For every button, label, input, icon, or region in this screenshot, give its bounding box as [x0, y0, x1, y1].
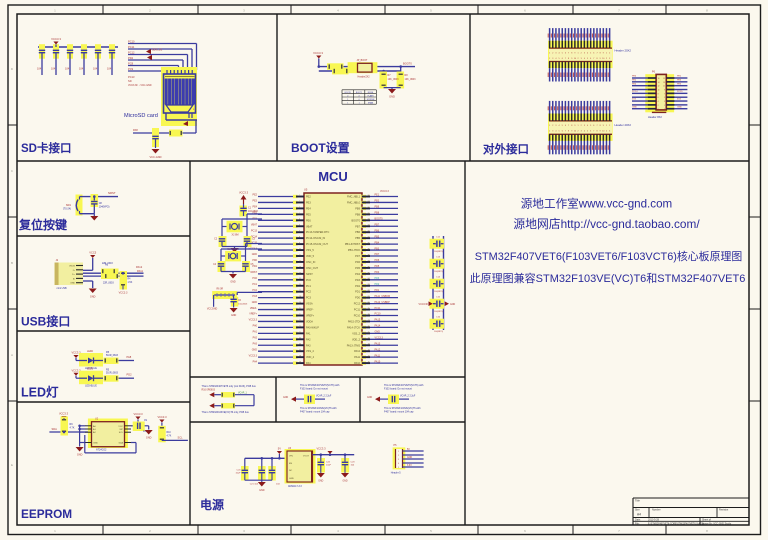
svg-text:PC2: PC2	[306, 291, 311, 294]
svg-text:AMS1117-3.3: AMS1117-3.3	[288, 485, 302, 488]
svg-text:Size: Size	[635, 509, 640, 512]
svg-text:EN: EN	[289, 463, 292, 465]
svg-text:25: 25	[299, 338, 301, 340]
svg-text:PC11: PC11	[375, 307, 381, 310]
svg-text:4: 4	[398, 463, 399, 465]
svg-text:F407 board: mount 104 cap: F407 board: mount 104 cap	[384, 411, 414, 414]
svg-text:VCC3.3F: VCC3.3F	[419, 304, 429, 306]
svg-text:Header 5: Header 5	[391, 472, 402, 475]
svg-text:VCAP_2 2.2uF: VCAP_2 2.2uF	[316, 395, 332, 398]
svg-text:10K_0603: 10K_0603	[388, 78, 400, 81]
svg-text:71: 71	[368, 356, 370, 358]
svg-text:PA12: PA12	[136, 265, 143, 269]
svg-text:1: 1	[549, 52, 550, 54]
svg-text:1: 1	[549, 125, 550, 127]
svg-text:10uF: 10uF	[236, 473, 242, 475]
svg-text:VCC: VCC	[118, 426, 123, 428]
svg-text:PB6: PB6	[355, 231, 360, 234]
svg-text:P6: P6	[652, 70, 656, 74]
svg-text:72: 72	[368, 350, 370, 352]
svg-text:GND: GND	[450, 304, 455, 306]
svg-text:7: 7	[593, 131, 594, 133]
svg-text:PE1: PE1	[375, 194, 380, 197]
svg-text:BOOT0: BOOT0	[352, 219, 361, 222]
svg-text:1: 1	[299, 195, 300, 197]
svg-text:PB6: PB6	[375, 229, 380, 232]
svg-text:对外接口: 对外接口	[483, 142, 529, 156]
svg-text:BOOT0: BOOT0	[403, 62, 412, 66]
svg-text:27: 27	[299, 350, 301, 352]
svg-text:2: 2	[578, 131, 579, 133]
svg-text:95: 95	[368, 213, 370, 215]
svg-text:B: B	[11, 261, 13, 265]
svg-text:PA14-JTCK: PA14-JTCK	[347, 326, 360, 329]
svg-text:88: 88	[368, 254, 370, 256]
svg-text:7: 7	[596, 52, 597, 54]
svg-text:PC12: PC12	[128, 51, 135, 55]
svg-text:73: 73	[368, 344, 370, 346]
svg-text:PD2: PD2	[127, 373, 133, 377]
svg-text:PA1: PA1	[306, 332, 311, 335]
svg-text:VCC3.3: VCC3.3	[51, 37, 61, 41]
svg-text:97: 97	[368, 201, 370, 203]
svg-text:SD: SD	[128, 79, 132, 83]
svg-text:F103 board: Do not mount: F103 board: Do not mount	[300, 388, 328, 391]
svg-text:8: 8	[600, 52, 601, 54]
svg-text:PD0: PD0	[252, 259, 257, 262]
svg-text:3: 3	[552, 58, 553, 60]
svg-text:29: 29	[299, 362, 301, 364]
svg-text:File:: File:	[635, 522, 640, 525]
svg-text:SDA: SDA	[119, 442, 124, 445]
svg-text:BOOT设置: BOOT设置	[291, 140, 350, 155]
svg-text:104: 104	[51, 68, 56, 71]
svg-text:STM32F407VET6(F103VET6/F103VCT: STM32F407VET6(F103VET6/F103VCT6)核心板原理图	[475, 249, 743, 263]
svg-text:10: 10	[658, 90, 660, 92]
svg-text:PA11: PA11	[354, 356, 360, 359]
svg-text:1: 1	[664, 105, 665, 107]
svg-text:VCC3.3: VCC3.3	[375, 337, 384, 340]
svg-text:MODE: MODE	[368, 92, 374, 94]
svg-text:PA13: PA13	[375, 342, 381, 345]
svg-text:-1: -1	[663, 109, 665, 111]
svg-text:104: 104	[107, 68, 112, 71]
svg-text:VSSA: VSSA	[306, 303, 313, 306]
svg-text:GND: GND	[677, 106, 682, 108]
svg-text:PB7: PB7	[355, 225, 360, 228]
svg-text:93: 93	[368, 225, 370, 227]
svg-text:5: 5	[590, 125, 591, 127]
svg-text:PC15-OSC32_OUT: PC15-OSC32_OUT	[306, 243, 328, 246]
svg-text:GND: GND	[342, 481, 347, 483]
svg-text:104(NPO): 104(NPO)	[99, 206, 110, 209]
svg-text:9: 9	[600, 131, 601, 133]
svg-text:7: 7	[565, 58, 566, 60]
svg-text:NRST: NRST	[250, 271, 257, 274]
svg-text:2: 2	[658, 105, 659, 107]
svg-text:PE3: PE3	[306, 201, 311, 204]
svg-text:GND: GND	[252, 301, 258, 304]
svg-text:2: 2	[398, 455, 399, 457]
svg-text:PE4: PE4	[252, 206, 257, 209]
svg-text:Title: Title	[635, 499, 640, 503]
svg-text:PA2: PA2	[253, 337, 258, 340]
svg-text:3: 3	[552, 131, 553, 133]
svg-text:12: 12	[658, 86, 660, 88]
svg-text:VCAP_2 2.2uF: VCAP_2 2.2uF	[400, 395, 416, 398]
svg-text:4: 4	[584, 131, 585, 133]
svg-text:SD卡接口: SD卡接口	[21, 141, 71, 155]
svg-text:4: 4	[555, 131, 556, 133]
svg-text:5: 5	[559, 131, 560, 133]
svg-text:PE2: PE2	[306, 196, 311, 199]
svg-text:R16 0R0603: R16 0R0603	[202, 389, 216, 392]
svg-text:6: 6	[593, 52, 594, 54]
svg-text:7: 7	[299, 231, 300, 233]
svg-text:GND: GND	[77, 454, 83, 457]
svg-text:3: 3	[609, 58, 610, 60]
svg-text:Sheet of: Sheet of	[702, 519, 711, 522]
svg-text:7: 7	[568, 125, 569, 127]
svg-text:EEPROM: EEPROM	[21, 507, 72, 521]
svg-text:GND: GND	[367, 397, 372, 399]
svg-text:This is STM32F103VE(VC)T6 only: This is STM32F103VE(VC)T6 only, PCB bus	[202, 411, 250, 414]
svg-text:LED0: LED0	[87, 350, 94, 353]
svg-text:PD2: PD2	[128, 56, 134, 60]
svg-text:PA13-JTMS: PA13-JTMS	[347, 344, 361, 347]
svg-text:PC1: PC1	[252, 283, 257, 286]
svg-text:(TS-24): (TS-24)	[63, 208, 71, 211]
svg-text:9: 9	[603, 52, 604, 54]
svg-text:91: 91	[368, 237, 370, 239]
svg-text:OSC_IN: OSC_IN	[306, 261, 316, 264]
svg-text:PA12: PA12	[354, 350, 361, 353]
svg-text:7: 7	[568, 52, 569, 54]
svg-text:PB5: PB5	[355, 237, 360, 240]
svg-text:PC9: PC9	[128, 67, 134, 71]
svg-text:9: 9	[603, 125, 604, 127]
svg-text:4: 4	[299, 213, 300, 215]
svg-text:PB4: PB4	[375, 241, 380, 244]
svg-text:6: 6	[590, 58, 591, 60]
svg-text:GND: GND	[632, 106, 637, 108]
svg-text:9: 9	[600, 58, 601, 60]
svg-text:10: 10	[574, 58, 576, 60]
svg-text:PD4: PD4	[355, 273, 360, 276]
svg-text:3: 3	[584, 125, 585, 127]
svg-text:PB3-JTDO: PB3-JTDO	[348, 249, 360, 252]
svg-text:510R_0603: 510R_0603	[106, 373, 119, 375]
svg-text:3: 3	[555, 125, 556, 127]
svg-text:Header 20X2: Header 20X2	[615, 49, 632, 53]
svg-text:5: 5	[398, 467, 399, 469]
svg-text:13: 13	[663, 82, 665, 84]
svg-text:3: 3	[398, 459, 399, 461]
svg-text:PD6: PD6	[355, 261, 360, 264]
svg-text:1.5K: 1.5K	[128, 282, 133, 284]
svg-text:VREF+: VREF+	[306, 315, 315, 318]
svg-text:81: 81	[368, 296, 370, 298]
svg-text:1: 1	[398, 451, 399, 453]
svg-text:4.7K: 4.7K	[70, 427, 75, 430]
svg-text:21: 21	[299, 314, 301, 316]
svg-text:VCC3.3: VCC3.3	[313, 51, 323, 55]
svg-text:复位按键: 复位按键	[18, 217, 67, 232]
svg-text:源地工作室www.vcc-gnd.com: 源地工作室www.vcc-gnd.com	[521, 197, 672, 211]
svg-text:86: 86	[368, 266, 370, 268]
svg-text:4: 4	[584, 58, 585, 60]
svg-text:F407 board: mount 104 cap: F407 board: mount 104 cap	[300, 411, 330, 414]
svg-text:VCC3.3: VCC3.3	[134, 412, 144, 416]
svg-text:SRAM: SRAM	[368, 102, 374, 105]
svg-text:5V: 5V	[407, 449, 410, 451]
svg-text:VCC3.3: VCC3.3	[249, 354, 258, 357]
svg-text:VSS_5: VSS_5	[306, 249, 314, 252]
svg-text:PD5: PD5	[375, 265, 380, 268]
svg-text:9: 9	[299, 243, 300, 245]
svg-text:5: 5	[587, 58, 588, 60]
svg-text:15: 15	[299, 278, 301, 280]
svg-text:A: A	[11, 353, 13, 357]
svg-text:3: 3	[581, 58, 582, 60]
svg-text:6: 6	[658, 97, 659, 99]
svg-text:2: 2	[549, 131, 550, 133]
svg-text:22: 22	[299, 320, 301, 322]
svg-text:9: 9	[571, 131, 572, 133]
svg-text:83: 83	[368, 284, 370, 286]
svg-text:R6 0R: R6 0R	[217, 289, 224, 291]
svg-text:5: 5	[562, 52, 563, 54]
svg-text:22R_0603: 22R_0603	[102, 263, 113, 265]
svg-text:GND: GND	[283, 397, 288, 399]
svg-text:84: 84	[368, 278, 370, 280]
svg-text:PE0: PE0	[375, 200, 380, 203]
svg-text:85: 85	[368, 272, 370, 274]
svg-text:PC11: PC11	[128, 45, 135, 49]
svg-text:VOUT: VOUT	[303, 456, 310, 458]
svg-text:PC1: PC1	[306, 285, 311, 288]
svg-text:WP: WP	[119, 429, 123, 431]
svg-text:Header 8X2: Header 8X2	[648, 115, 662, 119]
svg-text:PD7: PD7	[355, 255, 360, 258]
svg-text:PE2: PE2	[252, 194, 257, 197]
svg-text:8: 8	[299, 237, 300, 239]
svg-text:8: 8	[571, 52, 572, 54]
svg-text:3: 3	[664, 101, 665, 103]
svg-text:VCC3.3: VCC3.3	[239, 191, 249, 195]
svg-text:4: 4	[559, 125, 560, 127]
svg-text:PD4: PD4	[375, 271, 380, 274]
svg-text:PC12: PC12	[354, 303, 361, 306]
svg-text:7: 7	[593, 58, 594, 60]
svg-text:PA3: PA3	[253, 342, 258, 345]
svg-text:7: 7	[596, 125, 597, 127]
svg-text:FMC_NBL0: FMC_NBL0	[347, 201, 361, 204]
svg-text:104(NPO): 104(NPO)	[434, 251, 443, 253]
svg-text:PA10: PA10	[375, 360, 381, 363]
svg-text:MicroSD card: MicroSD card	[124, 113, 158, 119]
svg-text:VCC3.3: VCC3.3	[249, 319, 258, 322]
svg-text:PA15-JTDI: PA15-JTDI	[348, 320, 360, 323]
svg-text:GND: GND	[231, 314, 237, 317]
svg-text:PA4: PA4	[306, 362, 311, 365]
svg-text:R10: R10	[167, 432, 172, 434]
svg-text:2013-5-28: 2013-5-28	[648, 519, 660, 522]
svg-text:4: 4	[587, 52, 588, 54]
svg-text:5: 5	[299, 219, 300, 221]
svg-text:8: 8	[596, 58, 597, 60]
svg-text:OSC_OUT: OSC_OUT	[306, 267, 319, 270]
svg-text:PC0: PC0	[306, 279, 311, 282]
svg-text:104-0603: 104-0603	[238, 304, 248, 306]
svg-text:4: 4	[587, 125, 588, 127]
svg-text:PA2: PA2	[306, 338, 311, 341]
svg-text:LED1: LED1	[87, 368, 94, 371]
svg-text:PA10: PA10	[354, 362, 361, 365]
svg-text:8: 8	[658, 93, 659, 95]
svg-text:VSS_4: VSS_4	[306, 350, 314, 353]
svg-text:PD6: PD6	[375, 259, 380, 262]
svg-text:1: 1	[578, 125, 579, 127]
svg-text:5: 5	[587, 131, 588, 133]
svg-text:PC8: PC8	[128, 62, 134, 66]
svg-text:1: 1	[347, 103, 348, 105]
svg-text:VCC3.3: VCC3.3	[59, 412, 69, 416]
svg-text:PA11: PA11	[375, 354, 381, 357]
svg-text:GND: GND	[252, 348, 258, 351]
svg-text:75: 75	[368, 332, 370, 334]
svg-text:PB4-JNTRST: PB4-JNTRST	[345, 243, 361, 246]
svg-text:Header2X2: Header2X2	[358, 76, 371, 79]
svg-text:Number: Number	[652, 509, 661, 512]
svg-text:PC13-TAMPER-RTC: PC13-TAMPER-RTC	[306, 231, 329, 234]
svg-text:80: 80	[368, 302, 370, 304]
svg-text:VBAT: VBAT	[251, 223, 258, 226]
svg-text:0: 0	[658, 109, 659, 111]
svg-text:FLASH: FLASH	[368, 94, 374, 97]
svg-text:PB7: PB7	[375, 223, 380, 226]
svg-text:90: 90	[368, 243, 370, 245]
svg-text:源地网店http://vcc-gnd.taobao.com/: 源地网店http://vcc-gnd.taobao.com/	[513, 217, 700, 231]
svg-text:3: 3	[581, 131, 582, 133]
svg-text:PC13: PC13	[251, 229, 258, 232]
svg-text:PC10: PC10	[354, 315, 361, 318]
svg-text:77: 77	[368, 320, 370, 322]
svg-text:VDD_5: VDD_5	[306, 255, 315, 258]
svg-text:mini USB: mini USB	[57, 287, 67, 290]
svg-text:GND: GND	[318, 481, 323, 483]
svg-text:2: 2	[609, 125, 610, 127]
svg-text:GND: GND	[289, 478, 294, 480]
svg-text:94: 94	[368, 219, 370, 221]
svg-text:96: 96	[368, 207, 370, 209]
svg-text:VDDA: VDDA	[306, 320, 313, 323]
svg-text:16: 16	[658, 78, 660, 80]
svg-text:2: 2	[552, 52, 553, 54]
svg-text:14: 14	[658, 82, 660, 84]
svg-text:10: 10	[602, 131, 604, 133]
svg-text:78: 78	[368, 314, 370, 316]
svg-text:VSS_2: VSS_2	[352, 332, 360, 335]
svg-text:PE6: PE6	[306, 219, 311, 222]
svg-text:PA4: PA4	[253, 360, 258, 363]
svg-text:74: 74	[368, 338, 370, 340]
svg-text:2: 2	[581, 52, 582, 54]
svg-text:PD0: PD0	[355, 297, 360, 300]
svg-text:5: 5	[590, 52, 591, 54]
svg-text:2: 2	[552, 125, 553, 127]
svg-text:VREF-: VREF-	[250, 307, 257, 310]
svg-text:18: 18	[299, 296, 301, 298]
svg-text:6: 6	[562, 131, 563, 133]
svg-text:PD3: PD3	[355, 279, 360, 282]
svg-text:14: 14	[299, 272, 301, 274]
svg-text:10uF: 10uF	[326, 465, 332, 467]
svg-text:10: 10	[299, 248, 301, 250]
svg-text:5V: 5V	[278, 447, 281, 451]
svg-text:7: 7	[664, 93, 665, 95]
svg-text:NRST: NRST	[108, 191, 116, 195]
svg-text:PA0-WKUP: PA0-WKUP	[306, 326, 319, 329]
svg-text:VBUS: VBUS	[69, 266, 75, 268]
svg-text:GND: GND	[375, 331, 381, 334]
svg-text:BOOT0: BOOT0	[375, 218, 384, 221]
svg-text:1: 1	[578, 52, 579, 54]
svg-text:PD1: PD1	[355, 291, 360, 294]
svg-text:8: 8	[596, 131, 597, 133]
svg-text:76: 76	[368, 326, 370, 328]
svg-text:PA8: PA8	[133, 128, 138, 132]
svg-text:11: 11	[299, 254, 301, 256]
svg-text:GND: GND	[146, 437, 152, 440]
svg-text:2: 2	[606, 131, 607, 133]
svg-text:VBAT: VBAT	[306, 225, 313, 228]
svg-text:16: 16	[299, 284, 301, 286]
svg-text:PB5: PB5	[375, 235, 380, 238]
svg-text:VDD_4: VDD_4	[306, 356, 315, 359]
svg-text:VCC3.3: VCC3.3	[380, 190, 389, 193]
svg-text:82: 82	[368, 290, 370, 292]
svg-text:VCAP_1: VCAP_1	[238, 392, 248, 395]
svg-text:PC3: PC3	[306, 297, 311, 300]
svg-text:11: 11	[663, 86, 665, 88]
svg-text:104(NPO): 104(NPO)	[434, 311, 443, 313]
svg-text:PB9: PB9	[375, 206, 380, 209]
svg-text:GND: GND	[70, 283, 75, 285]
svg-text:9: 9	[571, 58, 572, 60]
svg-text:GND: GND	[93, 443, 98, 445]
svg-text:17: 17	[299, 290, 301, 292]
svg-text:6: 6	[590, 131, 591, 133]
svg-text:1: 1	[359, 103, 360, 105]
svg-text:10: 10	[602, 58, 604, 60]
svg-text:2: 2	[581, 125, 582, 127]
svg-text:PD1: PD1	[375, 289, 380, 292]
svg-text:PE3: PE3	[252, 200, 257, 203]
svg-text:BOOT1: BOOT1	[356, 92, 362, 94]
svg-text:USB接口: USB接口	[21, 314, 70, 329]
svg-text:4: 4	[559, 52, 560, 54]
svg-text:79: 79	[368, 308, 370, 310]
svg-text:SDIO_D1: SDIO_D1	[152, 49, 163, 52]
svg-text:4: 4	[555, 58, 556, 60]
svg-text:6: 6	[299, 225, 300, 227]
svg-text:6: 6	[593, 125, 594, 127]
svg-text:E:\STM32F407VET6-CORE\STM32F40: E:\STM32F407VET6-CORE\STM32F407VET6.SchD…	[648, 523, 705, 525]
svg-text:PB9: PB9	[355, 207, 360, 210]
svg-text:98: 98	[368, 195, 370, 197]
svg-text:Revision: Revision	[719, 509, 729, 512]
